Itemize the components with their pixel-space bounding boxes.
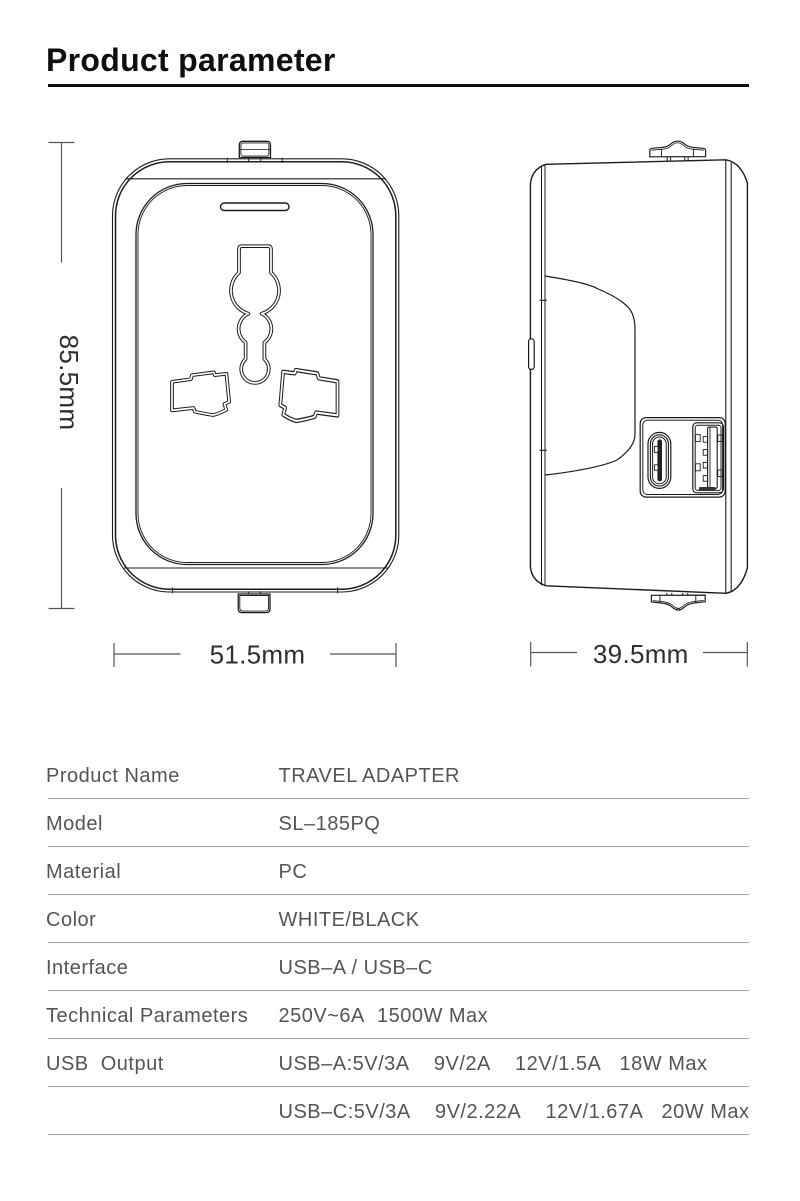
svg-text:39.5mm: 39.5mm (593, 639, 689, 669)
svg-text:85.5mm: 85.5mm (54, 335, 84, 431)
svg-text:51.5mm: 51.5mm (210, 640, 306, 670)
